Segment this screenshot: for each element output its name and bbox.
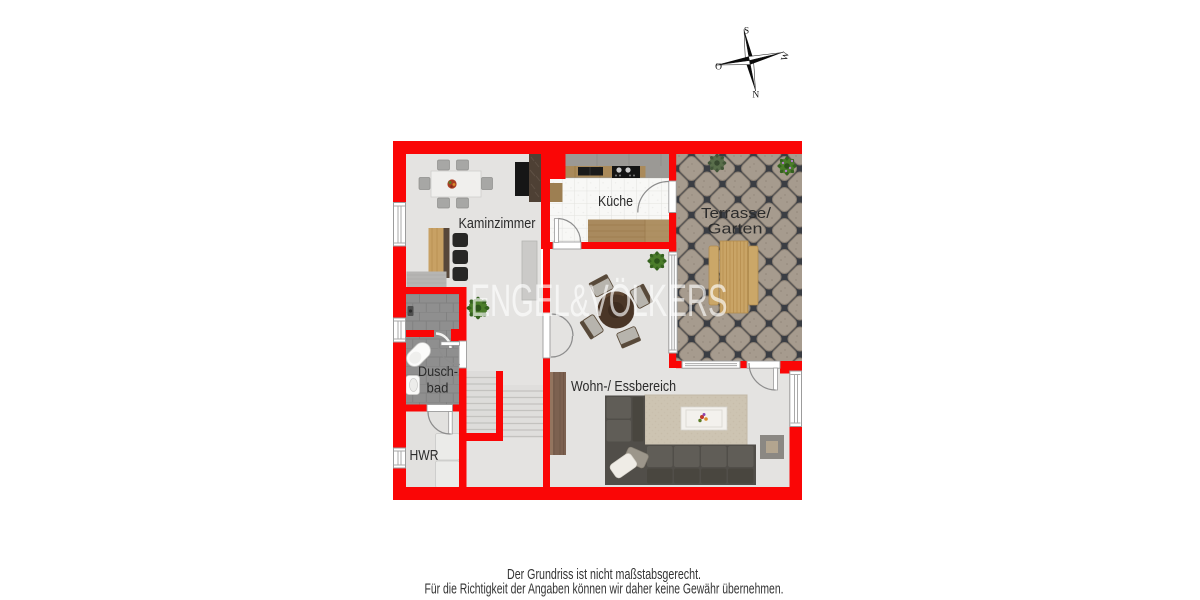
svg-text:bad: bad [427, 380, 449, 396]
svg-text:ENGEL&VÖLKERS: ENGEL&VÖLKERS [471, 275, 728, 326]
svg-text:S: S [744, 27, 749, 37]
svg-text:Küche: Küche [598, 194, 633, 210]
svg-text:HWR: HWR [410, 448, 439, 464]
svg-text:Wohn-/ Essbereich: Wohn-/ Essbereich [571, 379, 676, 395]
svg-text:Kaminzimmer: Kaminzimmer [459, 215, 536, 232]
svg-text:W: W [780, 51, 792, 62]
svg-text:Garten: Garten [708, 222, 763, 238]
svg-text:Für die Richtigkeit der Angabe: Für die Richtigkeit der Angaben können w… [425, 581, 784, 598]
svg-text:N: N [752, 91, 759, 101]
svg-text:Terrasse/: Terrasse/ [701, 206, 772, 222]
svg-text:O: O [715, 63, 722, 73]
svg-text:Dusch-: Dusch- [418, 363, 458, 379]
